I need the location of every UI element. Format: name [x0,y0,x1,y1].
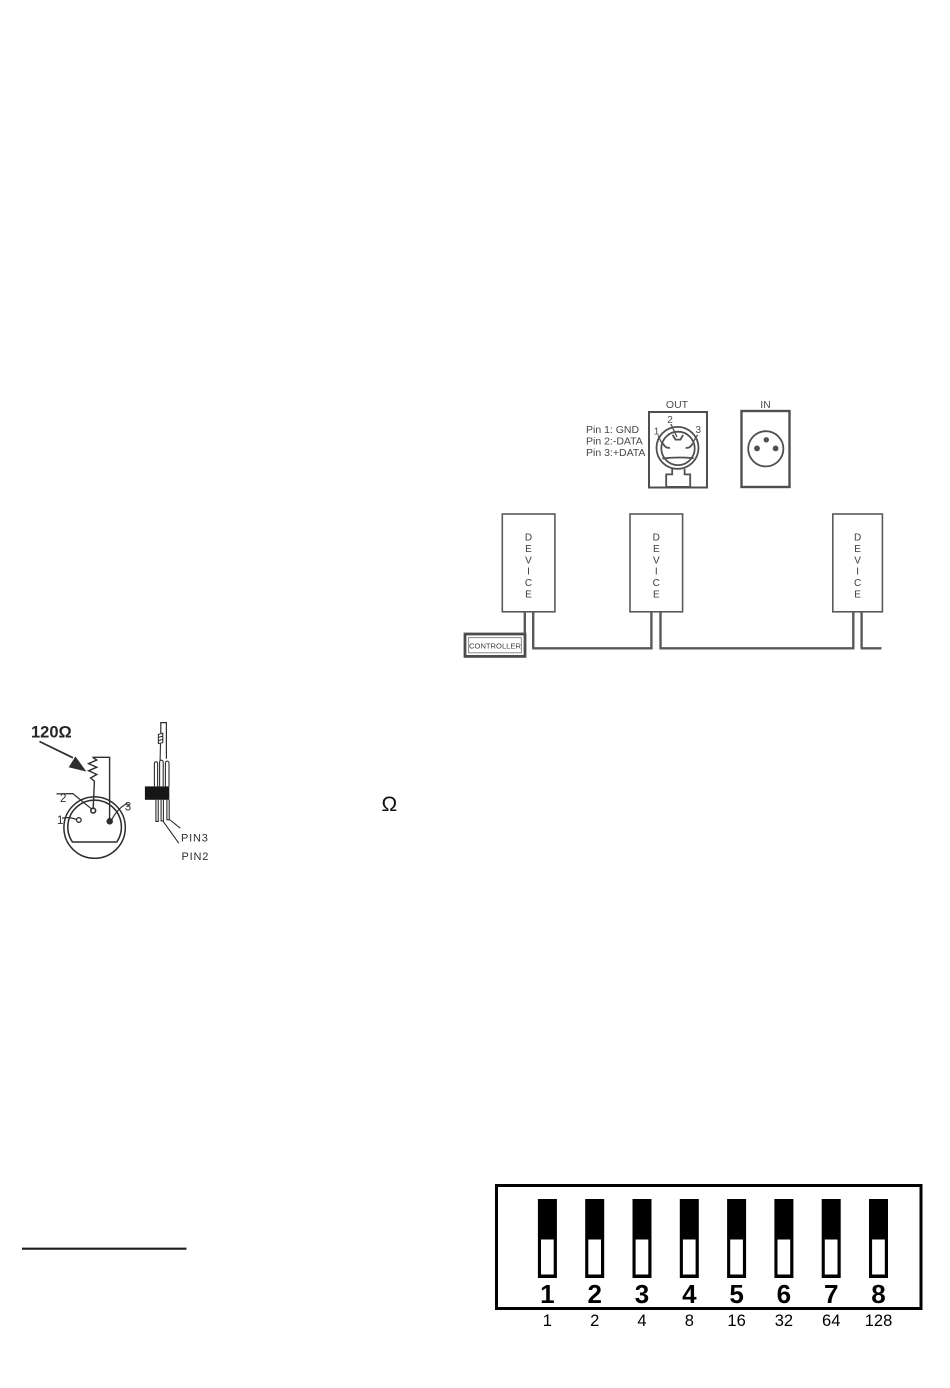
svg-text:PIN3: PIN3 [181,833,209,845]
svg-text:D: D [525,533,532,544]
svg-text:C: C [653,578,660,589]
svg-text:D: D [854,533,861,544]
svg-text:1: 1 [543,1312,552,1330]
svg-text:4: 4 [682,1279,697,1309]
svg-text:V: V [525,555,532,566]
svg-text:3: 3 [696,425,702,436]
svg-text:32: 32 [775,1312,793,1330]
svg-text:Pin 3:+DATA: Pin 3:+DATA [586,447,645,459]
svg-text:120Ω: 120Ω [31,724,72,742]
svg-text:1: 1 [654,426,660,437]
svg-text:128: 128 [865,1312,893,1330]
svg-text:5: 5 [729,1279,743,1309]
svg-text:I: I [655,567,658,578]
svg-text:I: I [856,567,859,578]
svg-text:6: 6 [777,1279,791,1309]
svg-text:2: 2 [60,793,66,805]
svg-text:Ω: Ω [382,793,398,816]
svg-text:C: C [854,578,861,589]
svg-text:C: C [525,578,532,589]
svg-text:E: E [653,544,660,555]
svg-text:16: 16 [727,1312,745,1330]
svg-text:2: 2 [590,1312,599,1330]
svg-text:E: E [854,544,861,555]
svg-text:8: 8 [685,1312,694,1330]
svg-text:IN: IN [760,399,771,411]
svg-text:V: V [854,555,861,566]
svg-text:E: E [525,544,532,555]
svg-text:E: E [525,590,532,601]
svg-text:3: 3 [125,802,131,814]
svg-text:Pin 1: GND: Pin 1: GND [586,424,640,436]
svg-text:V: V [653,555,660,566]
svg-text:64: 64 [822,1312,840,1330]
svg-text:E: E [854,590,861,601]
svg-text:2: 2 [587,1279,601,1309]
svg-text:1: 1 [540,1279,554,1309]
svg-text:CONTROLLER: CONTROLLER [469,641,521,650]
svg-text:3: 3 [635,1279,649,1309]
svg-text:1: 1 [57,815,63,827]
svg-text:PIN2: PIN2 [182,851,210,863]
svg-text:7: 7 [824,1279,838,1309]
svg-text:I: I [527,567,530,578]
svg-text:E: E [653,590,660,601]
svg-text:Pin 2:-DATA: Pin 2:-DATA [586,436,643,448]
svg-text:D: D [653,533,660,544]
svg-text:OUT: OUT [666,399,689,411]
svg-text:4: 4 [637,1312,646,1330]
svg-text:8: 8 [871,1279,885,1309]
